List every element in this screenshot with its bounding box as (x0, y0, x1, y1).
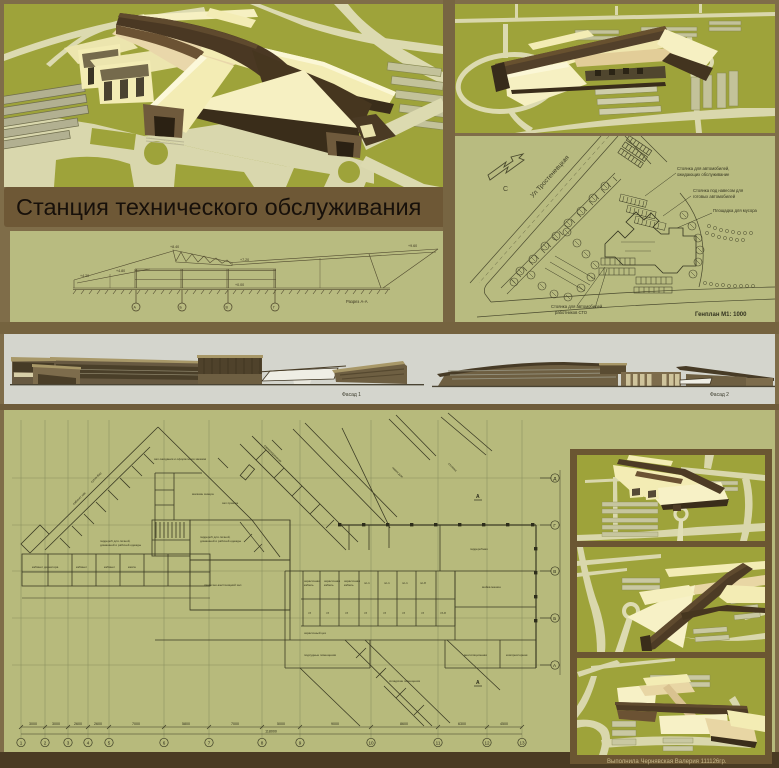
svg-text:2600: 2600 (74, 722, 82, 726)
svg-text:Стоянка для автомобилей,: Стоянка для автомобилей, (677, 166, 729, 171)
svg-text:тб: тб (345, 611, 348, 615)
svg-text:зал приема: зал приема (222, 501, 238, 505)
svg-text:домашней и рабочей одежды: домашней и рабочей одежды (100, 543, 141, 547)
svg-text:А: А (476, 680, 480, 686)
svg-text:тб: тб (421, 611, 424, 615)
svg-text:тб-8: тб-8 (440, 611, 446, 615)
svg-text:Б: Б (553, 616, 556, 621)
svg-text:кабинет: кабинет (104, 565, 116, 569)
svg-text:Разрез А-А: Разрез А-А (346, 299, 368, 304)
svg-text:кабель: кабель (324, 583, 334, 587)
svg-text:1: 1 (20, 740, 23, 745)
svg-text:кабель: кабель (344, 583, 354, 587)
svg-text:2600: 2600 (94, 722, 102, 726)
svg-text:домашней и рабочей одежды: домашней и рабочей одежды (200, 539, 241, 543)
svg-text:касса: касса (128, 565, 136, 569)
svg-text:гардеробная: гардеробная (470, 547, 488, 551)
svg-text:4: 4 (87, 740, 90, 745)
svg-text:+4.20: +4.20 (80, 274, 89, 278)
svg-text:2: 2 (44, 740, 47, 745)
svg-text:+0.00: +0.00 (235, 283, 244, 287)
svg-text:А: А (476, 494, 480, 500)
svg-text:Стоянка под навесом для: Стоянка под навесом для (693, 188, 743, 193)
svg-text:зал ожидания и оформления зака: зал ожидания и оформления заказов (154, 457, 206, 461)
svg-text:9: 9 (299, 740, 302, 745)
svg-text:Генплан М1: 1000: Генплан М1: 1000 (695, 312, 747, 318)
svg-text:6300: 6300 (458, 722, 466, 726)
svg-text:5000: 5000 (277, 722, 285, 726)
svg-text:11: 11 (436, 740, 441, 745)
svg-text:9000: 9000 (331, 722, 339, 726)
svg-text:5800: 5800 (182, 722, 190, 726)
svg-text:кабель: кабель (304, 583, 314, 587)
svg-text:Фасад 1: Фасад 1 (342, 392, 361, 398)
svg-text:тб: тб (364, 611, 367, 615)
svg-text:6: 6 (163, 740, 166, 745)
svg-text:Фасад 2: Фасад 2 (710, 392, 729, 398)
svg-text:окрасочный цех: окрасочный цех (304, 631, 327, 635)
svg-text:3000: 3000 (29, 722, 37, 726)
svg-text:В: В (553, 569, 556, 574)
svg-text:кабинет директора: кабинет директора (32, 565, 59, 569)
svg-text:пс-1: пс-1 (364, 581, 370, 585)
svg-text:8: 8 (261, 740, 264, 745)
svg-text:компрессорная: компрессорная (506, 653, 528, 657)
svg-text:7: 7 (208, 740, 211, 745)
svg-text:пс-1: пс-1 (384, 581, 390, 585)
svg-text:магазин севера: магазин севера (192, 492, 214, 496)
svg-text:7000: 7000 (132, 722, 140, 726)
svg-text:готовых автомобилей: готовых автомобилей (693, 194, 736, 199)
svg-text:+7.20: +7.20 (240, 258, 249, 262)
svg-text:12: 12 (484, 740, 490, 745)
svg-text:+8.40: +8.40 (170, 245, 179, 249)
svg-text:8600: 8600 (400, 722, 408, 726)
svg-text:13: 13 (519, 740, 525, 745)
svg-text:пс-8: пс-8 (420, 581, 426, 585)
svg-text:С: С (503, 186, 508, 193)
svg-text:10: 10 (368, 740, 374, 745)
svg-text:тб: тб (308, 611, 311, 615)
svg-text:вентиляционная: вентиляционная (464, 653, 487, 657)
svg-text:кабинет: кабинет (76, 565, 88, 569)
svg-text:складские помещения: складские помещения (389, 679, 420, 683)
svg-text:3: 3 (67, 740, 70, 745)
svg-text:тб: тб (326, 611, 329, 615)
svg-text:сварочно-жестяницкий зал: сварочно-жестяницкий зал (204, 583, 242, 587)
svg-text:мойка машин: мойка машин (482, 585, 501, 589)
svg-text:118000: 118000 (265, 730, 277, 734)
svg-text:Площадка для мусора: Площадка для мусора (713, 208, 758, 213)
svg-text:4500: 4500 (500, 722, 508, 726)
svg-text:7000: 7000 (231, 722, 239, 726)
svg-text:тб: тб (402, 611, 405, 615)
svg-text:+4.80: +4.80 (116, 269, 125, 273)
svg-text:Г: Г (273, 305, 275, 309)
svg-text:ожидающих обслуживание: ожидающих обслуживание (677, 172, 730, 177)
svg-text:тб: тб (383, 611, 386, 615)
svg-text:5: 5 (108, 740, 111, 745)
svg-text:работников СТО: работников СТО (555, 310, 588, 315)
svg-text:подсудные помещения: подсудные помещения (304, 653, 336, 657)
svg-text:+9.60: +9.60 (408, 244, 417, 248)
svg-text:пс-1: пс-1 (402, 581, 408, 585)
svg-text:Стоянка для автомобилей: Стоянка для автомобилей (551, 304, 603, 309)
svg-text:3000: 3000 (52, 722, 60, 726)
